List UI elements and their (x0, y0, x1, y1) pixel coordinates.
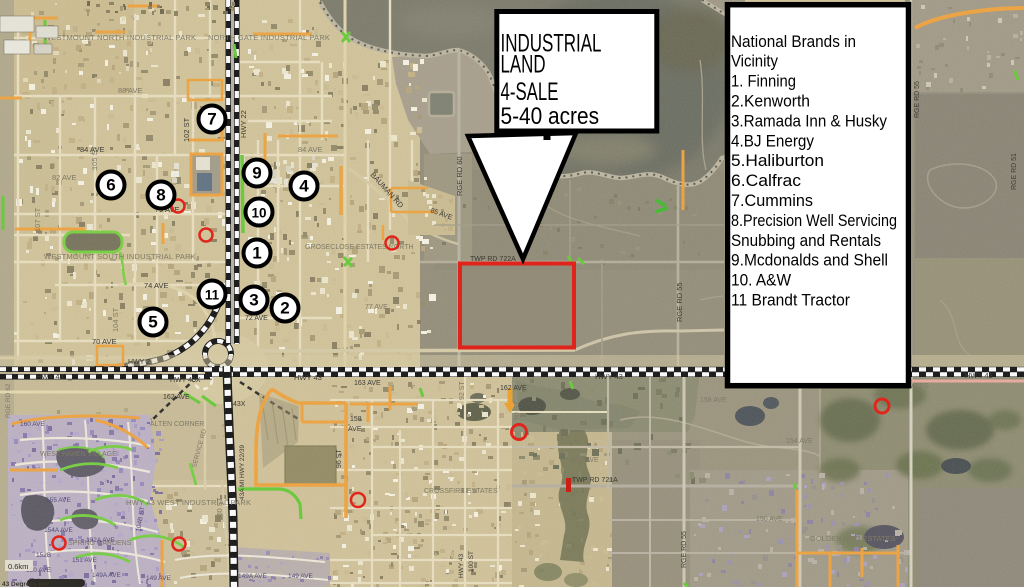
svg-text:2.Kenworth: 2.Kenworth (731, 93, 810, 111)
svg-text:11 Brandt Tractor: 11 Brandt Tractor (731, 292, 851, 310)
svg-text:LAND: LAND (501, 51, 546, 79)
svg-text:9.Mcdonalds and Shell: 9.Mcdonalds and Shell (731, 252, 888, 270)
svg-text:Snubbing and Rentals: Snubbing and Rentals (731, 232, 881, 250)
svg-text:10: 10 (251, 206, 266, 221)
svg-text:0.6km: 0.6km (8, 562, 28, 571)
svg-text:6.Calfrac: 6.Calfrac (731, 172, 801, 190)
svg-text:5: 5 (148, 313, 157, 332)
svg-text:3.Ramada Inn & Husky: 3.Ramada Inn & Husky (731, 112, 888, 130)
svg-text:Vicinity: Vicinity (731, 53, 779, 71)
svg-text:1: 1 (252, 244, 261, 263)
svg-text:9: 9 (252, 164, 261, 183)
svg-text:5.Haliburton: 5.Haliburton (731, 152, 824, 170)
svg-text:8: 8 (156, 186, 165, 205)
svg-text:3: 3 (249, 291, 258, 310)
svg-text:National Brands in: National Brands in (731, 33, 856, 51)
svg-text:6: 6 (106, 176, 115, 195)
svg-text:2: 2 (280, 299, 289, 318)
svg-text:11: 11 (205, 288, 220, 303)
svg-text:10. A&W: 10. A&W (731, 272, 792, 290)
svg-text:4: 4 (299, 177, 309, 196)
svg-text:7.Cummins: 7.Cummins (731, 192, 813, 210)
svg-text:1. Finning: 1. Finning (731, 73, 796, 91)
svg-text:8.Precision Well Servicing: 8.Precision Well Servicing (731, 212, 897, 230)
svg-text:43 Degrees Nor: 43 Degrees Nor (2, 581, 50, 587)
svg-text:5-40 acres: 5-40 acres (501, 103, 600, 130)
svg-text:4-SALE: 4-SALE (501, 78, 559, 106)
svg-text:4.BJ Energy: 4.BJ Energy (731, 132, 815, 150)
svg-text:7: 7 (207, 110, 216, 129)
